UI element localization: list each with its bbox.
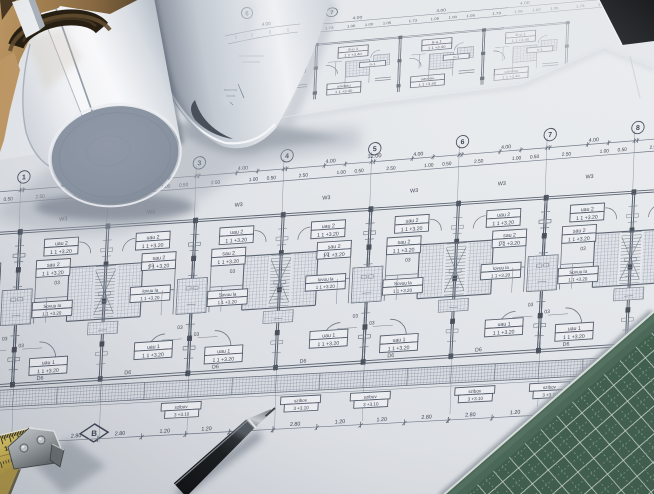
svg-text:3 +3.10: 3 +3.10 [467,396,483,402]
svg-text:2.50: 2.50 [299,172,309,179]
svg-text:D6: D6 [562,342,569,348]
svg-text:5: 5 [373,146,377,153]
svg-text:4.00: 4.00 [353,15,363,20]
svg-text:szibov: szibov [174,404,188,410]
svg-text:D6: D6 [124,370,131,376]
svg-text:1.20: 1.20 [510,410,521,417]
svg-text:W3: W3 [322,195,330,202]
svg-text:1.73: 1.73 [409,18,419,23]
svg-text:6-u 1: 6-u 1 [432,39,442,44]
svg-text:6-u 1: 6-u 1 [348,46,358,51]
svg-text:n-1: n-1 [453,55,459,59]
svg-text:3 +3.10: 3 +3.10 [293,405,309,411]
svg-text:4.00: 4.00 [589,137,599,144]
svg-text:2.80: 2.80 [465,412,476,419]
svg-text:3 +3.10: 3 +3.10 [363,401,379,407]
svg-text:0.50: 0.50 [530,154,540,161]
svg-text:03: 03 [177,325,183,331]
svg-text:D6: D6 [212,364,219,370]
svg-text:8: 8 [636,125,640,132]
svg-text:1.00: 1.00 [424,162,434,169]
svg-text:n-1: n-1 [369,62,375,66]
svg-text:1.00: 1.00 [600,148,610,155]
svg-text:2.80: 2.80 [421,414,432,421]
svg-text:0.50: 0.50 [354,168,364,175]
svg-text:szibov: szibov [294,398,308,404]
svg-text:1.06: 1.06 [347,23,357,28]
svg-text:W3: W3 [585,174,593,181]
svg-text:2.80: 2.80 [114,431,125,438]
svg-text:0.50: 0.50 [442,161,452,168]
svg-text:6: 6 [460,139,464,146]
svg-text:1.20: 1.20 [334,419,345,426]
svg-text:2.50: 2.50 [474,158,484,165]
svg-text:4.00: 4.00 [501,144,511,151]
svg-text:1.05: 1.05 [466,13,476,18]
svg-text:03: 03 [369,320,375,326]
svg-text:4.00: 4.00 [325,158,335,165]
svg-text:2.80: 2.80 [71,433,82,440]
svg-text:D6: D6 [387,353,394,359]
svg-text:03: 03 [18,343,24,349]
svg-text:lovuu la: lovuu la [318,276,334,282]
svg-text:03: 03 [528,302,534,308]
svg-text:03: 03 [148,263,154,269]
svg-text:szibov: szibov [364,394,378,400]
svg-text:D6: D6 [36,376,43,382]
svg-text:D6: D6 [475,347,482,353]
svg-text:4.00: 4.00 [413,151,423,158]
svg-text:03: 03 [544,309,550,315]
svg-text:03: 03 [54,280,60,286]
svg-text:0.50: 0.50 [617,147,627,154]
svg-text:1.00: 1.00 [365,22,375,27]
svg-text:03: 03 [230,269,236,275]
svg-text:03: 03 [405,257,411,263]
svg-text:szibov: szibov [543,384,557,390]
svg-text:B: B [91,429,98,438]
svg-text:1.20: 1.20 [201,426,212,433]
svg-text:2.50: 2.50 [649,144,654,151]
svg-text:03: 03 [499,240,505,246]
svg-text:1.00: 1.00 [512,155,522,162]
svg-text:1.20: 1.20 [376,417,387,424]
svg-text:0.50: 0.50 [267,175,277,182]
svg-text:1: 1 [22,174,26,181]
svg-text:1.00: 1.00 [336,169,346,176]
svg-text:1.20: 1.20 [159,428,170,435]
svg-text:7: 7 [548,132,552,139]
svg-text:1.06: 1.06 [430,16,440,21]
svg-text:1.00: 1.00 [249,176,259,183]
svg-text:03: 03 [352,313,358,319]
svg-text:W3: W3 [235,202,243,209]
svg-text:03: 03 [194,332,200,338]
svg-text:D6: D6 [299,359,306,365]
svg-text:03: 03 [324,252,330,258]
svg-text:W3: W3 [498,181,506,188]
svg-text:1.00: 1.00 [448,14,458,19]
svg-text:lovuu la: lovuu la [142,288,158,294]
svg-text:lovuu la: lovuu la [493,265,509,271]
svg-text:1.05: 1.05 [383,20,393,25]
svg-text:1.73: 1.73 [492,11,502,16]
svg-text:W3: W3 [410,188,418,195]
svg-text:2.80: 2.80 [290,421,301,428]
svg-text:szibov: szibov [468,388,482,394]
svg-text:2.50: 2.50 [562,151,572,158]
svg-text:03: 03 [580,246,586,252]
svg-text:03: 03 [2,336,8,342]
svg-text:3 +3.10: 3 +3.10 [174,412,190,418]
svg-text:2.50: 2.50 [386,165,396,172]
svg-text:4.00: 4.00 [436,8,446,13]
